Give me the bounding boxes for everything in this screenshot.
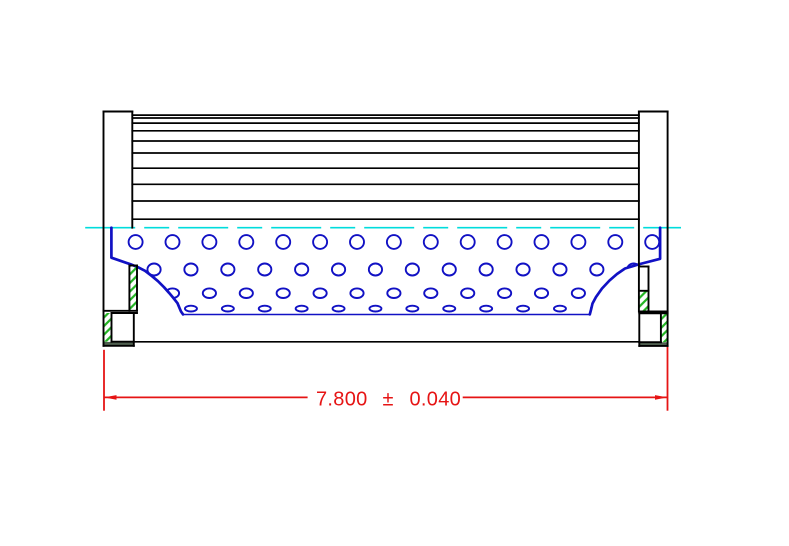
svg-text:7.800: 7.800: [316, 389, 368, 411]
svg-text:0.040: 0.040: [410, 389, 462, 411]
svg-text:±: ±: [383, 389, 394, 411]
